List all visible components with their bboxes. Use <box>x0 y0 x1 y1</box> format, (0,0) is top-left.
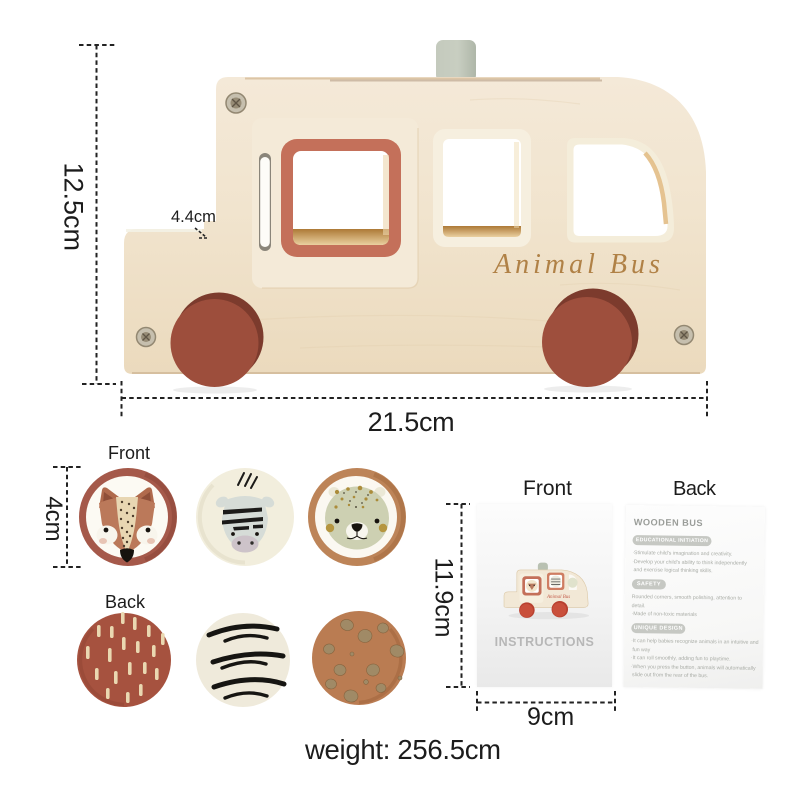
svg-text:Animal Bus: Animal Bus <box>492 249 664 280</box>
svg-text:Animal Bus: Animal Bus <box>546 595 570 600</box>
